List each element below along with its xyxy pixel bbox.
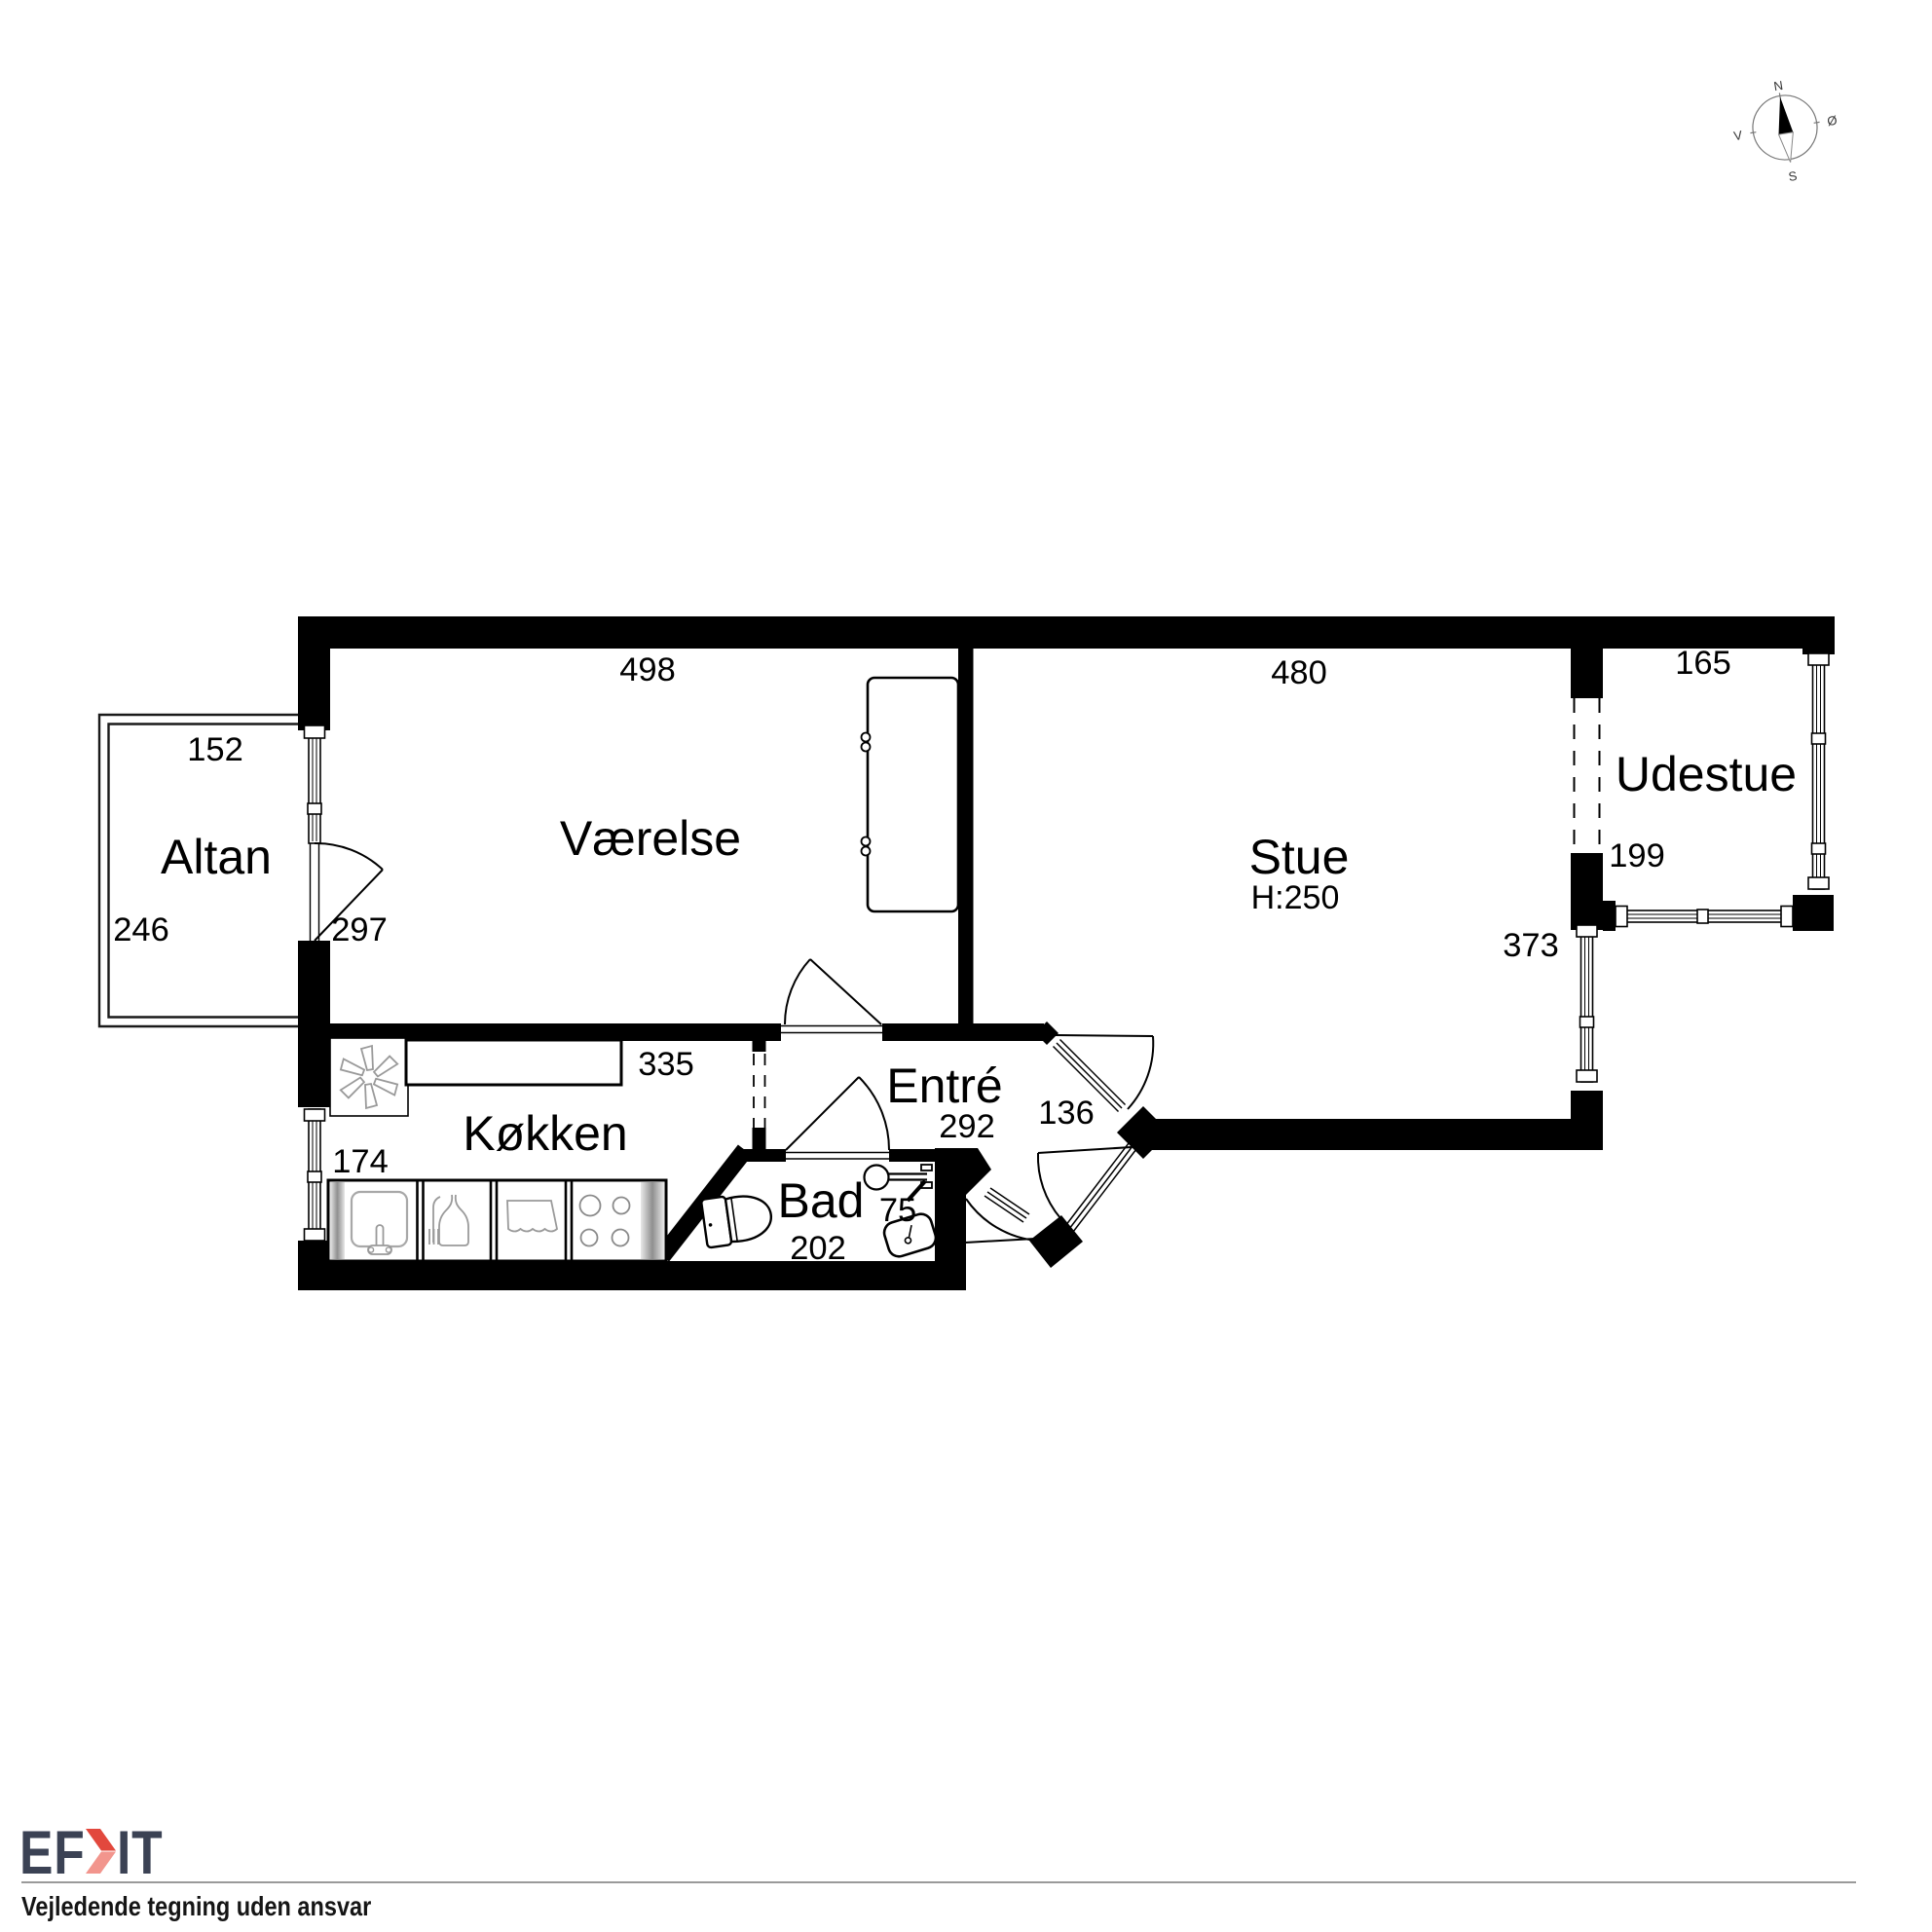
svg-text:297: 297 <box>331 911 388 948</box>
svg-text:174: 174 <box>332 1143 389 1180</box>
svg-text:480: 480 <box>1271 654 1327 691</box>
svg-text:136: 136 <box>1038 1095 1095 1132</box>
svg-text:IT: IT <box>117 1819 164 1887</box>
svg-text:Stue: Stue <box>1249 830 1350 884</box>
svg-text:246: 246 <box>113 911 169 948</box>
svg-text:498: 498 <box>619 651 676 688</box>
svg-text:165: 165 <box>1675 645 1731 682</box>
svg-text:292: 292 <box>939 1108 995 1145</box>
svg-text:373: 373 <box>1503 927 1559 964</box>
svg-text:Udestue: Udestue <box>1616 747 1797 801</box>
svg-text:199: 199 <box>1609 837 1665 874</box>
svg-text:Entré: Entré <box>886 1059 1003 1113</box>
svg-text:335: 335 <box>638 1046 694 1083</box>
svg-text:152: 152 <box>187 731 243 768</box>
svg-text:202: 202 <box>790 1230 846 1267</box>
svg-text:EF: EF <box>19 1819 86 1887</box>
svg-text:H:250: H:250 <box>1251 879 1340 916</box>
svg-text:Værelse: Værelse <box>560 811 741 866</box>
svg-text:Vejledende tegning uden ansvar: Vejledende tegning uden ansvar <box>21 1892 371 1921</box>
svg-text:Altan: Altan <box>161 830 272 884</box>
svg-text:Bad: Bad <box>778 1173 865 1228</box>
svg-text:75: 75 <box>879 1192 916 1229</box>
svg-text:Køkken: Køkken <box>463 1106 628 1161</box>
